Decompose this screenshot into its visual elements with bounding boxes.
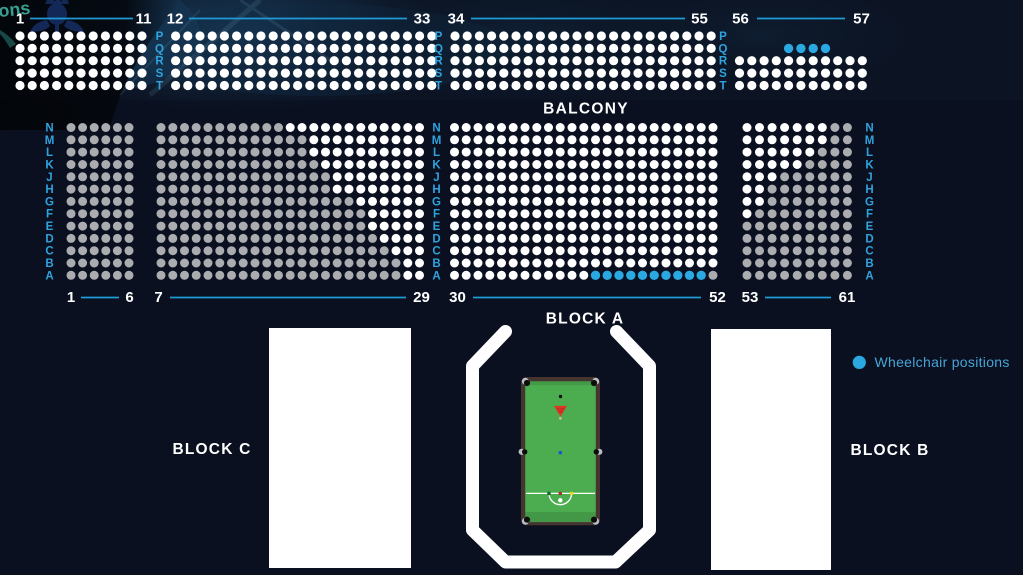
svg-text:Q: Q bbox=[155, 43, 164, 55]
svg-text:Q: Q bbox=[434, 43, 443, 55]
svg-text:S: S bbox=[435, 68, 443, 80]
svg-text:C: C bbox=[45, 246, 53, 258]
svg-text:D: D bbox=[865, 233, 873, 245]
svg-text:T: T bbox=[156, 81, 163, 93]
svg-text:G: G bbox=[432, 196, 441, 208]
svg-text:M: M bbox=[432, 135, 442, 147]
svg-text:A: A bbox=[45, 270, 53, 282]
svg-text:J: J bbox=[46, 172, 52, 184]
svg-text:H: H bbox=[45, 184, 53, 196]
svg-text:K: K bbox=[432, 160, 441, 172]
svg-text:N: N bbox=[45, 123, 53, 135]
svg-text:F: F bbox=[866, 209, 873, 221]
svg-text:61: 61 bbox=[839, 289, 856, 306]
svg-text:34: 34 bbox=[448, 11, 465, 28]
svg-text:P: P bbox=[156, 31, 164, 43]
svg-text:57: 57 bbox=[853, 11, 870, 28]
svg-text:56: 56 bbox=[732, 11, 749, 28]
svg-text:P: P bbox=[719, 31, 727, 43]
svg-text:N: N bbox=[865, 123, 873, 135]
svg-text:M: M bbox=[45, 135, 55, 147]
svg-text:BALCONY: BALCONY bbox=[543, 101, 629, 118]
svg-text:E: E bbox=[866, 221, 874, 233]
svg-text:BLOCK A: BLOCK A bbox=[546, 311, 624, 328]
svg-text:S: S bbox=[719, 68, 727, 80]
svg-text:E: E bbox=[46, 221, 54, 233]
svg-text:C: C bbox=[432, 246, 440, 258]
svg-text:J: J bbox=[433, 172, 439, 184]
svg-text:12: 12 bbox=[167, 11, 184, 28]
svg-text:7: 7 bbox=[154, 289, 162, 306]
svg-text:H: H bbox=[865, 184, 873, 196]
svg-text:BLOCK B: BLOCK B bbox=[850, 442, 929, 459]
svg-text:B: B bbox=[865, 258, 873, 270]
svg-text:A: A bbox=[432, 270, 440, 282]
svg-text:R: R bbox=[719, 56, 728, 68]
svg-text:Q: Q bbox=[719, 43, 728, 55]
svg-text:T: T bbox=[719, 81, 726, 93]
svg-text:L: L bbox=[433, 147, 440, 159]
svg-text:L: L bbox=[46, 147, 53, 159]
svg-text:A: A bbox=[865, 270, 873, 282]
svg-text:1: 1 bbox=[16, 11, 24, 28]
svg-text:N: N bbox=[432, 123, 440, 135]
svg-text:M: M bbox=[865, 135, 875, 147]
svg-text:P: P bbox=[435, 31, 443, 43]
svg-text:30: 30 bbox=[449, 289, 466, 306]
svg-text:K: K bbox=[865, 160, 874, 172]
svg-text:53: 53 bbox=[742, 289, 759, 306]
svg-text:33: 33 bbox=[414, 11, 431, 28]
svg-text:E: E bbox=[433, 221, 441, 233]
svg-text:C: C bbox=[865, 246, 873, 258]
svg-text:S: S bbox=[156, 68, 164, 80]
svg-text:T: T bbox=[435, 81, 442, 93]
svg-text:J: J bbox=[866, 172, 872, 184]
svg-text:1: 1 bbox=[67, 289, 75, 306]
svg-text:F: F bbox=[46, 209, 53, 221]
svg-text:R: R bbox=[155, 56, 164, 68]
svg-text:L: L bbox=[866, 147, 873, 159]
svg-text:G: G bbox=[865, 196, 874, 208]
svg-text:D: D bbox=[45, 233, 53, 245]
svg-text:6: 6 bbox=[125, 289, 133, 306]
svg-text:BLOCK C: BLOCK C bbox=[172, 441, 251, 458]
svg-text:K: K bbox=[45, 160, 54, 172]
svg-text:B: B bbox=[45, 258, 53, 270]
svg-text:H: H bbox=[432, 184, 440, 196]
svg-text:52: 52 bbox=[709, 289, 726, 306]
svg-text:29: 29 bbox=[413, 289, 430, 306]
svg-text:R: R bbox=[434, 56, 443, 68]
svg-text:55: 55 bbox=[691, 11, 708, 28]
svg-text:Wheelchair positions: Wheelchair positions bbox=[875, 354, 1010, 370]
svg-text:D: D bbox=[432, 233, 440, 245]
svg-text:G: G bbox=[45, 196, 54, 208]
svg-text:11: 11 bbox=[136, 11, 152, 28]
svg-text:F: F bbox=[433, 209, 440, 221]
svg-text:B: B bbox=[432, 258, 440, 270]
